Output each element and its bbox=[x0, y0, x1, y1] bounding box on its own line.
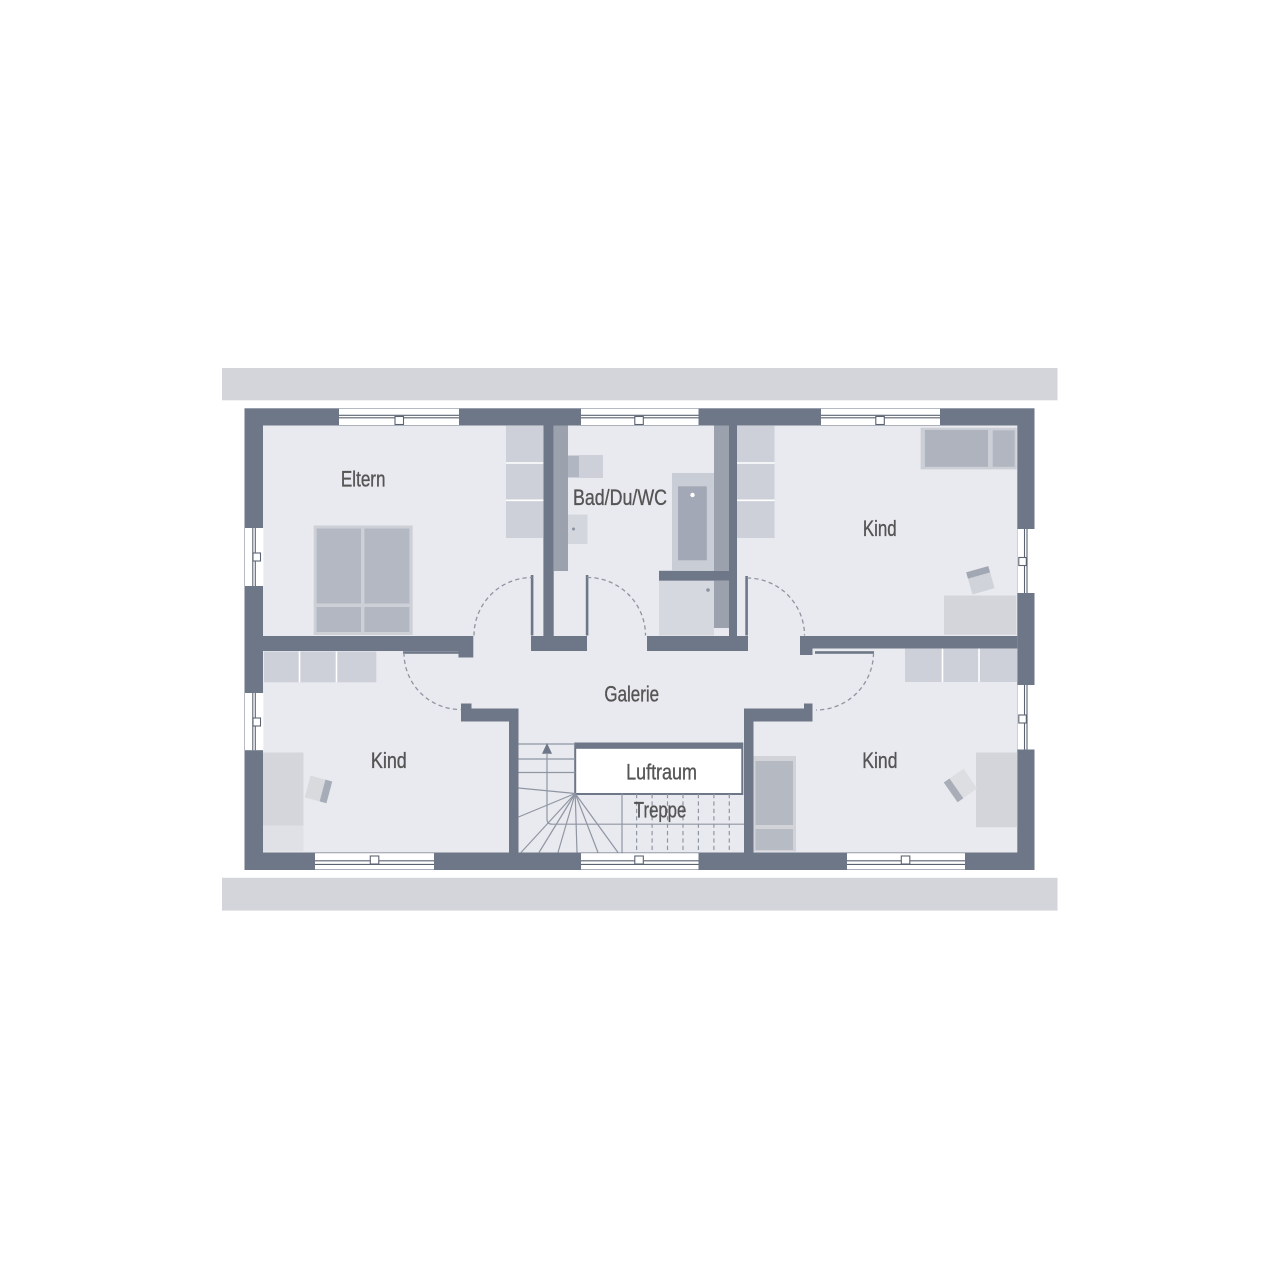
svg-text:Eltern: Eltern bbox=[341, 467, 386, 492]
svg-text:Treppe: Treppe bbox=[634, 798, 686, 823]
svg-text:Kind: Kind bbox=[863, 516, 897, 541]
svg-text:Luftraum: Luftraum bbox=[626, 760, 697, 785]
svg-text:Kind: Kind bbox=[371, 748, 407, 773]
svg-text:Kind: Kind bbox=[862, 748, 897, 773]
svg-text:Galerie: Galerie bbox=[604, 682, 659, 707]
svg-text:Bad/Du/WC: Bad/Du/WC bbox=[573, 485, 667, 510]
